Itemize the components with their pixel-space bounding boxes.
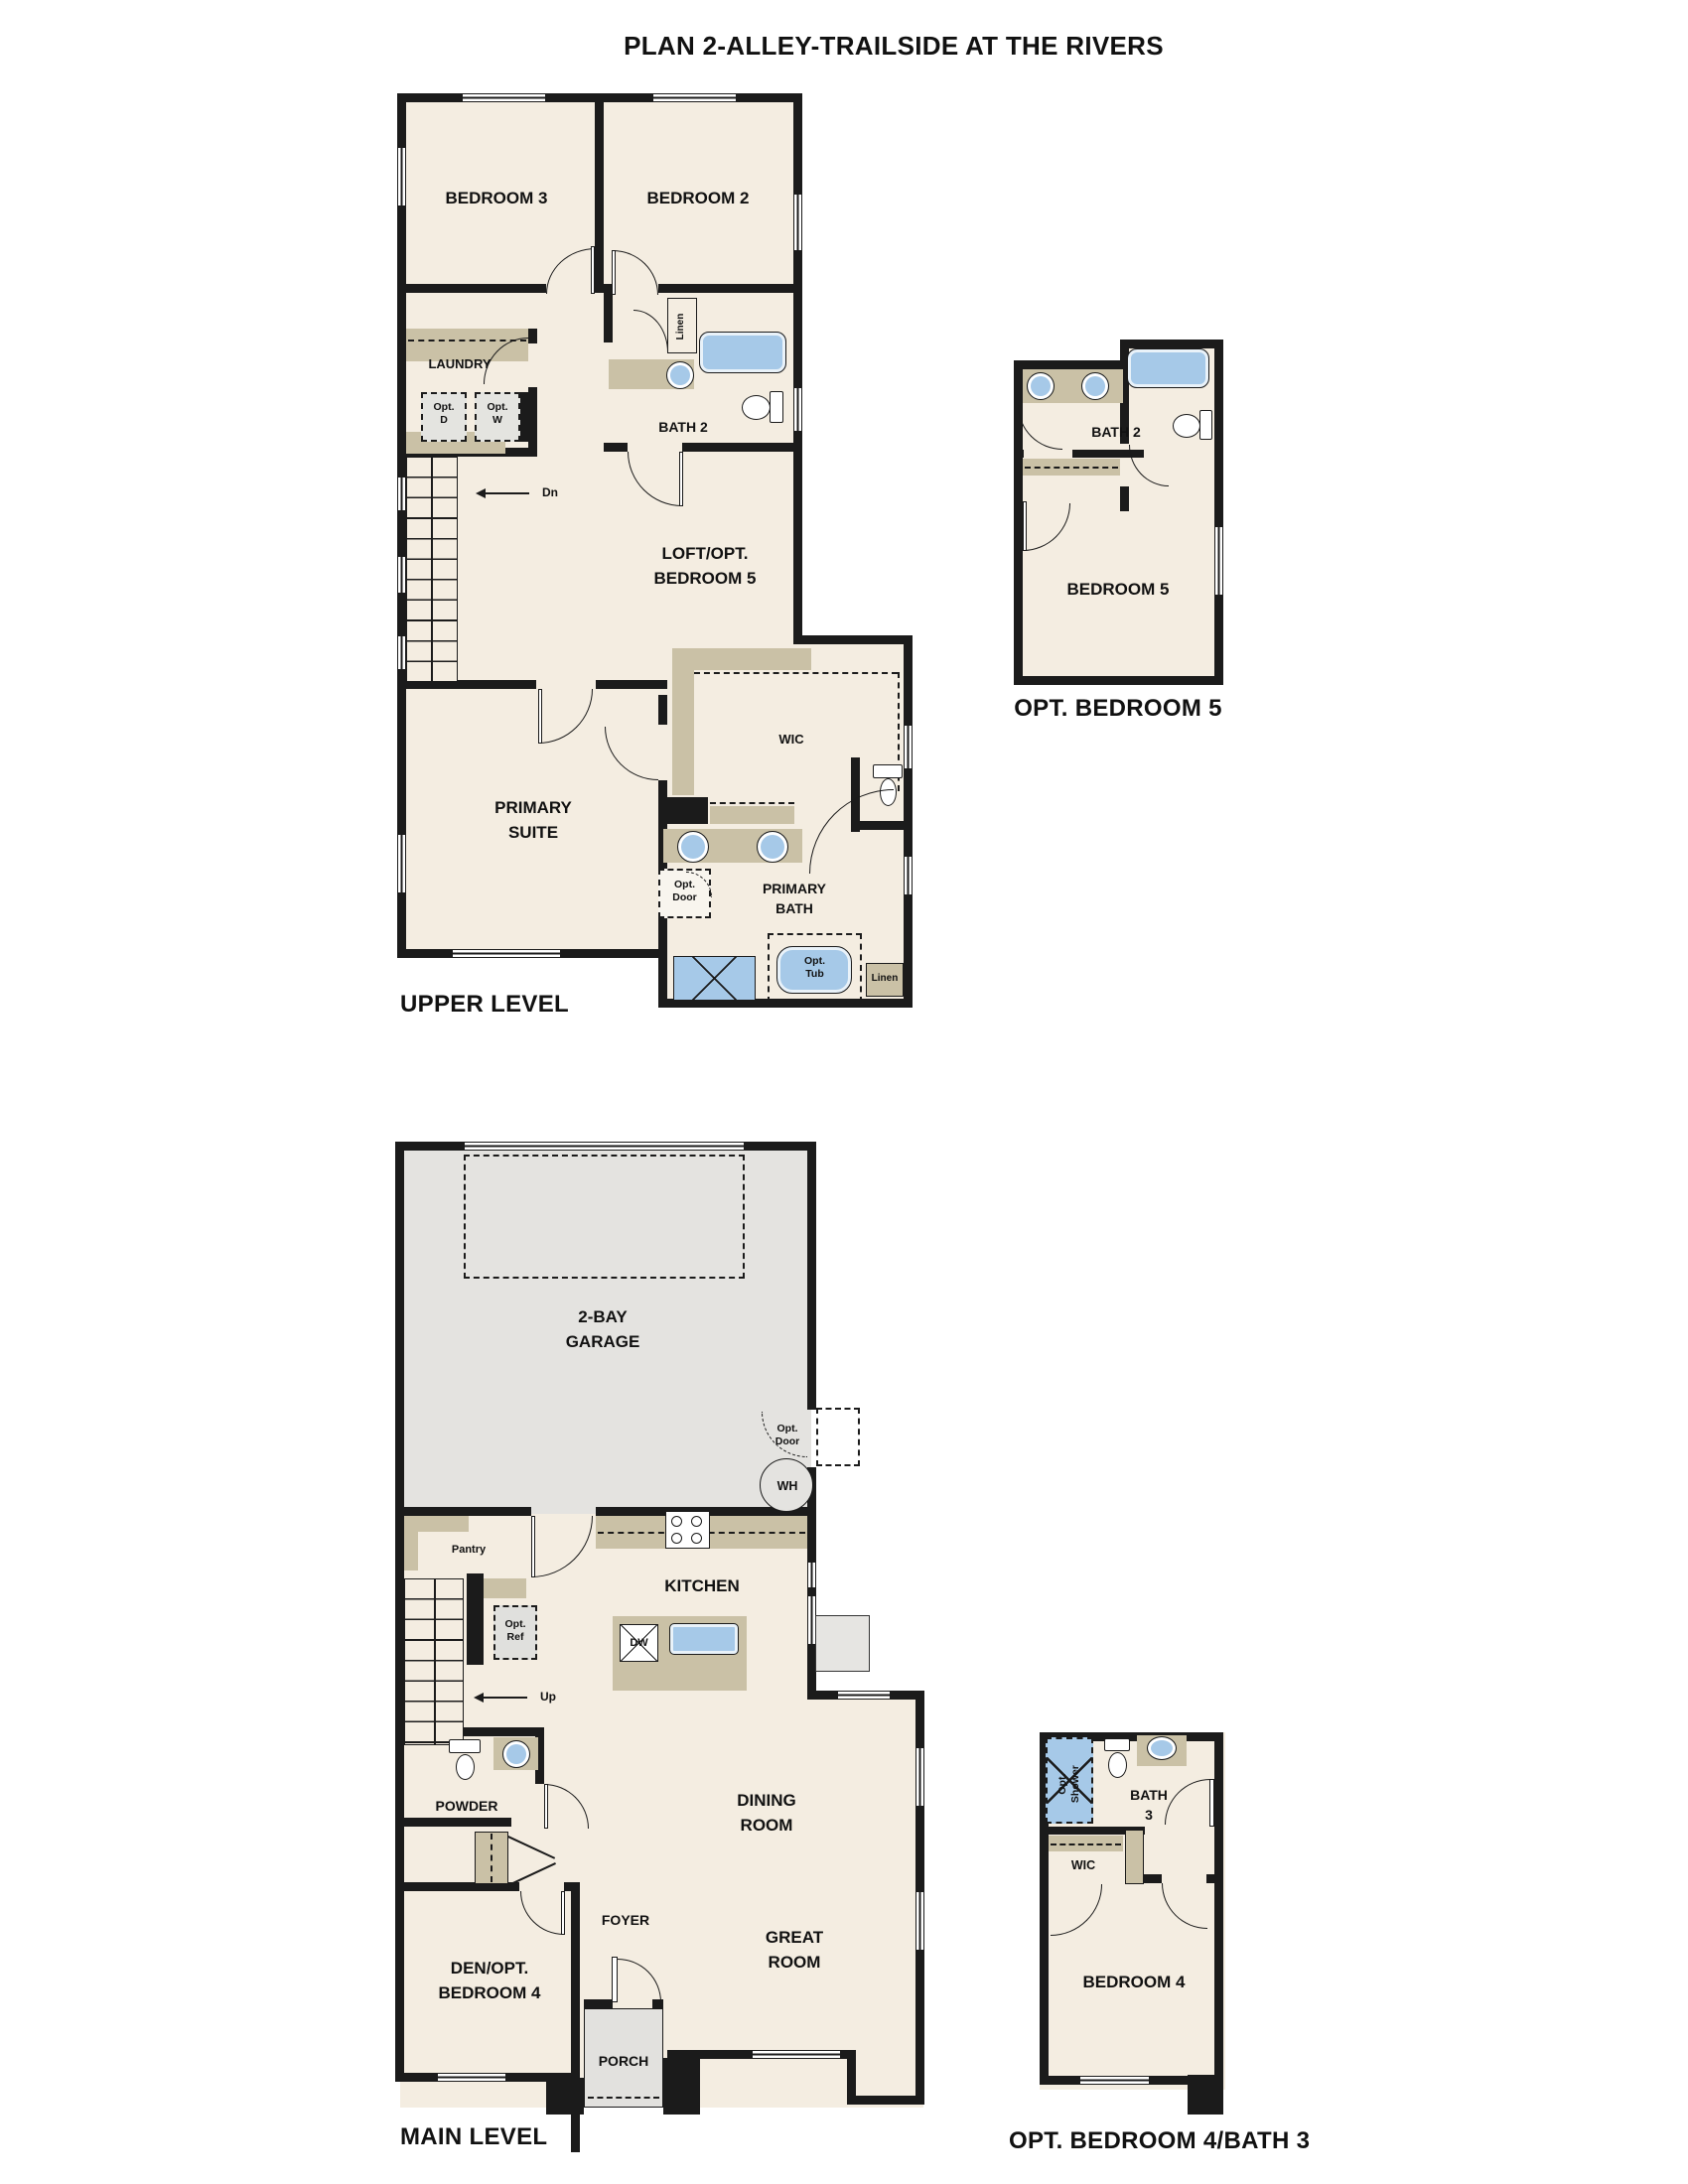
toilet-tank — [1199, 410, 1212, 440]
room-label-bedroom3: BEDROOM 3 — [417, 187, 576, 211]
wall — [595, 93, 604, 293]
closet-rod-dashed — [710, 802, 794, 804]
wall — [807, 1691, 837, 1700]
exterior-pad — [815, 1615, 870, 1672]
wall — [682, 443, 802, 452]
wall — [1040, 2076, 1079, 2085]
garage-parking-outline — [464, 1155, 745, 1279]
window — [397, 834, 406, 893]
wall — [584, 1999, 613, 2008]
room-label-garage: 2-BAY GARAGE — [523, 1305, 682, 1354]
wall — [807, 1516, 816, 1562]
room-label-foyer: FOYER — [576, 1910, 675, 1930]
door-leaf — [544, 1784, 548, 1829]
window — [652, 93, 737, 102]
closet-rod-dashed — [1025, 467, 1118, 469]
stair-rail — [431, 457, 433, 683]
bathtub — [699, 332, 786, 373]
burner-icon — [691, 1533, 702, 1544]
opt-dryer-label: Opt. D — [421, 401, 467, 427]
window — [807, 1562, 816, 1588]
room-label-bath3: BATH 3 — [1109, 1785, 1189, 1826]
wall — [915, 1951, 924, 2105]
opt-shower: Opt. Shower — [1046, 1737, 1093, 1824]
wall — [397, 93, 406, 958]
dishwasher-label: DW — [620, 1636, 658, 1652]
closet-rod-dashed — [1051, 1843, 1121, 1845]
wall — [663, 2058, 700, 2115]
toilet-tank — [449, 1739, 481, 1753]
burner-icon — [691, 1516, 702, 1527]
opt-tub-label: Opt. Tub — [768, 955, 862, 981]
toilet-tank — [770, 391, 783, 423]
sink — [666, 361, 694, 389]
door-leaf — [1023, 501, 1027, 551]
window — [452, 949, 561, 958]
door-leaf — [591, 246, 595, 294]
wall — [395, 1142, 464, 1151]
wall — [793, 635, 913, 644]
main-level-caption: MAIN LEVEL — [400, 2120, 698, 2155]
pantry-shelf — [404, 1516, 418, 1570]
window — [837, 1691, 891, 1700]
wall — [546, 2078, 584, 2115]
toilet-bowl — [742, 395, 771, 420]
burner-icon — [671, 1516, 682, 1527]
wall — [915, 1807, 924, 1891]
room-label-powder: POWDER — [407, 1796, 526, 1816]
wall — [807, 1588, 816, 1595]
cabinet — [484, 1578, 526, 1598]
wall — [395, 1142, 404, 2082]
room-label-laundry: LAUNDRY — [400, 355, 519, 374]
toilet-tank — [1104, 1738, 1130, 1751]
wall — [1014, 450, 1024, 458]
room-label-loft: LOFT/OPT. BEDROOM 5 — [606, 542, 804, 591]
room-label-bedroom4: BEDROOM 4 — [1059, 1971, 1208, 1995]
wall — [1014, 676, 1223, 685]
wall — [596, 680, 667, 689]
wall — [847, 2096, 924, 2105]
stairs-direction-arrow — [474, 1693, 484, 1703]
room-label-dining: DINING ROOM — [697, 1789, 836, 1838]
wall — [604, 443, 628, 452]
window — [752, 2050, 841, 2059]
bathtub — [1127, 348, 1209, 388]
wall — [528, 387, 537, 448]
window — [793, 194, 802, 251]
opt-bedroom4-bath3-plan: Opt. Shower BATH 3 WIC BEDROOM 4 — [1038, 1727, 1236, 2124]
opt-door-box — [816, 1408, 860, 1466]
wall — [1120, 340, 1223, 348]
room-label-great-room: GREAT ROOM — [725, 1926, 864, 1975]
floor-plan-sheet: PLAN 2-ALLEY-TRAILSIDE AT THE RIVERS — [0, 0, 1688, 2184]
wic-shelf — [672, 648, 694, 795]
wall — [915, 1691, 924, 1747]
room-label-wic: WIC — [1053, 1856, 1114, 1874]
closet-rod-dashed — [694, 672, 898, 674]
linen-label: Linen — [675, 299, 687, 354]
island-sink — [669, 1623, 739, 1655]
wall — [395, 1507, 531, 1516]
room-label-bath2: BATH 2 — [624, 417, 743, 437]
room-label-den: DEN/OPT. BEDROOM 4 — [410, 1957, 569, 2005]
wall — [658, 284, 802, 293]
cooktop — [665, 1511, 710, 1549]
window — [397, 147, 406, 206]
garage-door — [464, 1142, 745, 1151]
toilet-bowl — [1108, 1752, 1127, 1778]
closet-wall-block — [1125, 1830, 1144, 1884]
wall — [745, 1142, 816, 1151]
wall — [528, 329, 537, 343]
toilet-bowl — [456, 1754, 475, 1780]
window — [915, 1891, 924, 1951]
opt-bedroom5-plan: BATH 2 BEDROOM 5 — [1008, 338, 1236, 725]
wall — [807, 1142, 816, 1410]
sink — [502, 1740, 530, 1768]
opt-door-label: Opt. Door — [658, 879, 711, 904]
wall — [665, 797, 708, 824]
room-label-bedroom2: BEDROOM 2 — [619, 187, 777, 211]
door-leaf — [1209, 1779, 1214, 1827]
window — [793, 387, 802, 432]
wall — [395, 1818, 511, 1827]
window — [397, 635, 406, 670]
window — [1214, 526, 1223, 596]
wall — [467, 1573, 484, 1665]
upper-level-plan: Linen BEDROOM 3 BEDROOM 2 LAUNDRY — [392, 89, 933, 1023]
window — [915, 1747, 924, 1807]
opt-ref-label: Opt. Ref — [493, 1618, 537, 1644]
door-leaf — [679, 452, 683, 506]
linen2-label: Linen — [866, 973, 904, 985]
door-leaf — [561, 1891, 565, 1935]
opt-bedroom5-caption: OPT. BEDROOM 5 — [994, 692, 1242, 727]
window — [397, 477, 406, 511]
room-label-primary-suite: PRIMARY SUITE — [454, 796, 613, 845]
sink — [757, 831, 788, 863]
wall — [596, 284, 613, 293]
page-title: PLAN 2-ALLEY-TRAILSIDE AT THE RIVERS — [397, 28, 1390, 60]
room-label-wic: WIC — [742, 731, 841, 750]
door-leaf — [531, 1516, 535, 1577]
wic-shelf — [710, 806, 794, 824]
stair-rail — [434, 1578, 436, 1745]
sink — [1027, 372, 1055, 400]
toilet-bowl — [1173, 414, 1200, 438]
main-level-plan: WH — [392, 1137, 938, 2119]
wall — [1014, 360, 1120, 369]
room-label-kitchen: KITCHEN — [637, 1574, 767, 1599]
closet-rod-dashed — [491, 1834, 492, 1882]
pantry-label: Pantry — [437, 1543, 500, 1559]
window — [397, 556, 406, 594]
door-leaf — [612, 250, 616, 295]
window — [1079, 2076, 1150, 2085]
door-leaf — [538, 689, 542, 744]
sink — [1081, 372, 1109, 400]
opt-shower-label: Opt. Shower — [1056, 1746, 1082, 1822]
wall — [1188, 2075, 1223, 2115]
stairs-arrow-line — [486, 492, 529, 494]
room-label-bedroom5: BEDROOM 5 — [1044, 578, 1193, 603]
burner-icon — [671, 1533, 682, 1544]
wall — [658, 695, 667, 725]
stairs-direction-arrow — [476, 488, 486, 498]
room-label-porch: PORCH — [584, 2051, 663, 2071]
opt-bedroom4-bath3-caption: OPT. BEDROOM 4/BATH 3 — [1009, 2124, 1267, 2159]
room-label-bath2: BATH 2 — [1066, 422, 1166, 442]
water-heater-label: WH — [761, 1477, 814, 1495]
window — [437, 2073, 506, 2082]
opt-door-label: Opt. Door — [761, 1423, 814, 1448]
stairs-arrow-line — [484, 1697, 527, 1699]
stairs-dn-label: Dn — [533, 484, 567, 501]
window — [904, 725, 913, 769]
water-heater: WH — [760, 1458, 813, 1512]
porch-edge-dashed — [588, 2097, 659, 2099]
wall — [395, 2073, 437, 2082]
wall — [1214, 1732, 1223, 2115]
wall — [1144, 1874, 1162, 1883]
sink — [677, 831, 709, 863]
wall — [1214, 340, 1223, 526]
sink — [1147, 1736, 1177, 1760]
wall — [397, 284, 546, 293]
window — [904, 856, 913, 895]
window — [462, 93, 546, 102]
wall — [1206, 1874, 1223, 1883]
room-label-primary-bath: PRIMARY BATH — [735, 879, 854, 919]
linen-closet: Linen — [667, 298, 697, 353]
upper-level-caption: UPPER LEVEL — [400, 988, 698, 1023]
stairs-up-label: Up — [531, 1689, 565, 1706]
wall — [604, 293, 613, 342]
toilet-tank — [873, 764, 903, 778]
wall — [1214, 596, 1223, 685]
wall — [1120, 486, 1129, 511]
opt-washer-label: Opt. W — [475, 401, 520, 427]
